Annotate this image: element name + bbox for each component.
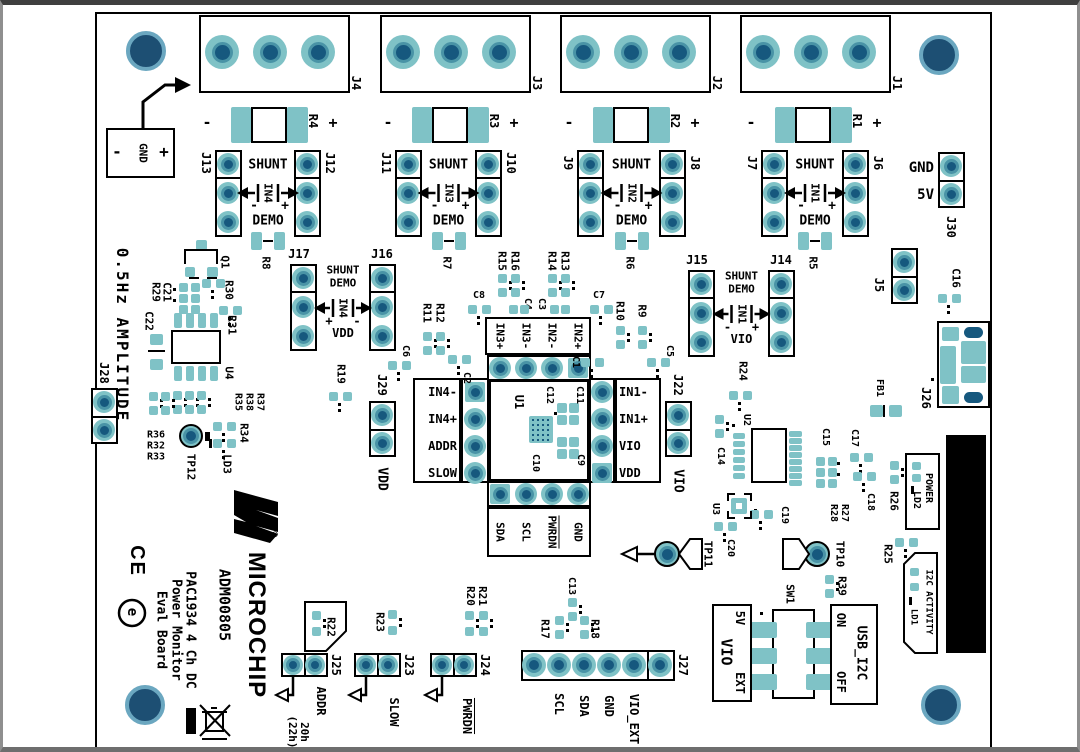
silkscreen-linework xyxy=(3,5,1077,747)
screenshot-frame: -GND+J4J3J2J1-R4+-R3+-R2+-R1+J13J12SHUNT… xyxy=(0,0,1080,752)
pcb-assembly-drawing: -GND+J4J3J2J1-R4+-R3+-R2+-R1+J13J12SHUNT… xyxy=(3,5,1077,747)
weee-icon xyxy=(200,705,230,739)
